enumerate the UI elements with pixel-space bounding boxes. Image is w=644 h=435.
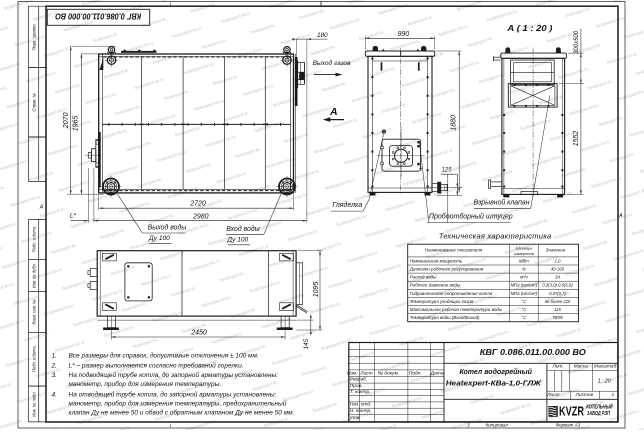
svg-text:KVZR: KVZR [559,405,584,419]
svg-text:Т. контр.: Т. контр. [350,389,371,395]
svg-text:L*: L* [70,213,77,220]
svg-text:Расход воды: Расход воды [410,275,437,280]
svg-text:Подп. и дата: Подп. и дата [31,346,36,372]
svg-text:Номинальная мощность: Номинальная мощность [410,259,463,264]
svg-text:МВт: МВт [519,259,529,264]
svg-text:Котел водогрейный: Котел водогрейный [459,367,532,376]
svg-text:Температура уходящих газов: Температура уходящих газов [410,299,474,304]
svg-text:клапан Ду не менее 50 и обвод: клапан Ду не менее 50 и обвод с обратным… [69,409,295,417]
svg-text:измерения: измерения [514,251,535,256]
svg-text:м³/ч: м³/ч [520,275,528,280]
svg-text:Перв. примен.: Перв. примен. [31,23,36,50]
svg-text:1965: 1965 [73,116,80,132]
svg-text:Подп. и дата: Подп. и дата [31,226,36,252]
svg-text:300х500: 300х500 [574,30,580,54]
svg-text:Выход газов: Выход газов [313,59,352,67]
svg-text:Рабочее давление воды: Рабочее давление воды [410,283,461,288]
svg-text:40-100: 40-100 [551,267,565,272]
svg-text:Утв.: Утв. [350,415,361,421]
svg-text:ЗАВОД РЭП: ЗАВОД РЭП [587,411,610,417]
svg-text:%: % [522,267,526,272]
svg-text:КВГ 0.086.011.00.000 ВО: КВГ 0.086.011.00.000 ВО [480,348,587,357]
svg-text:А: А [39,205,44,211]
svg-text:Подп.: Подп. [409,371,422,377]
svg-text:Лит.: Лит. [551,363,563,369]
svg-text:Наименование показателя: Наименование показателя [425,248,483,253]
svg-text:Копировал: Копировал [486,423,509,428]
svg-text:1552: 1552 [573,131,580,147]
svg-text:А: А [618,213,623,219]
svg-text:манометр, прибор для измерения: манометр, прибор для измерения температу… [69,380,222,388]
svg-text:Пробоотборный штуцер: Пробоотборный штуцер [429,213,513,221]
svg-text:Инв. № подл.: Инв. № подл. [31,391,36,416]
svg-text:1: 1 [169,423,171,428]
svg-text:2.: 2. [51,363,58,370]
svg-text:А ( 1 : 20 ): А ( 1 : 20 ) [506,24,553,33]
svg-text:Значение: Значение [546,248,566,253]
svg-text:2450: 2450 [190,329,207,336]
svg-text:Диапазон рабочего регулировани: Диапазон рабочего регулирования [409,267,484,272]
svg-text:70/95: 70/95 [552,315,563,320]
svg-text:Температура воды (Вход/Выход): Температура воды (Вход/Выход) [410,315,480,320]
svg-text:1095: 1095 [313,282,320,298]
svg-text:2070: 2070 [63,112,70,129]
svg-text:КОТЕЛЬНЫЙ: КОТЕЛЬНЫЙ [586,403,613,411]
svg-text:1 : 20: 1 : 20 [598,378,611,384]
svg-text:Листов: Листов [575,392,594,398]
svg-text:Разраб.: Разраб. [350,376,367,382]
svg-text:А: А [329,106,338,118]
svg-text:1.: 1. [52,352,58,359]
svg-text:990: 990 [397,31,409,38]
svg-text:На подводящей трубе котла, до: На подводящей трубе котла, до запорной а… [69,371,279,379]
svg-text:1: 1 [169,1,171,6]
svg-text:КВГ 0.086.011.00.000 ВО: КВГ 0.086.011.00.000 ВО [55,11,141,21]
svg-text:Формат А3: Формат А3 [555,423,580,428]
svg-text:0,07(0,7): 0,07(0,7) [549,291,566,296]
svg-text:Лист: Лист [359,371,373,377]
svg-text:2980: 2980 [192,214,209,221]
svg-text:Ду 100: Ду 100 [148,235,170,242]
svg-text:МПа (кгс/см²): МПа (кгс/см²) [511,283,538,288]
svg-text:115: 115 [554,307,561,312]
svg-text:Вход воды: Вход воды [226,225,259,233]
svg-text:Выход воды: Выход воды [148,224,187,232]
svg-text:Ду 100: Ду 100 [226,237,248,244]
svg-text:Масштаб: Масштаб [594,363,617,369]
svg-text:не более 220: не более 220 [545,299,571,304]
svg-text:МПа (кгс/см²): МПа (кгс/см²) [511,291,538,296]
svg-text:Дата: Дата [430,371,444,377]
svg-text:манометр, прибор для измерения: манометр, прибор для измерения температу… [69,400,287,408]
svg-text:180: 180 [317,32,328,39]
svg-text:Максимальная рабочая температу: Максимальная рабочая температура воды [410,307,503,312]
svg-text:Гидравлическое сопротивление к: Гидравлическое сопротивление котла [410,291,493,296]
svg-text:1,0: 1,0 [555,259,561,264]
svg-text:34: 34 [555,275,560,280]
svg-text:Взрывной клапан: Взрывной клапан [474,199,530,207]
svg-text:L* – размер выполняется соглас: L* – размер выполняется согласно требова… [69,362,244,370]
svg-text:Все размеры для справок, допус: Все размеры для справок, допустимые откл… [69,351,259,359]
svg-text:Инв. № дубл.: Инв. № дубл. [31,263,36,288]
svg-text:Единицы: Единицы [516,246,533,251]
svg-text:На отводящей трубе котла, до з: На отводящей трубе котла, до запорной ар… [69,391,277,399]
svg-text:№ докум.: № докум. [378,371,400,377]
svg-text:0,3(3,0)-0,6(6,0): 0,3(3,0)-0,6(6,0) [542,283,573,288]
svg-text:1880: 1880 [451,115,458,131]
svg-text:Техническая характеристика: Техническая характеристика [439,232,552,241]
svg-text:Взам. инв. №: Взам. инв. № [31,299,36,325]
svg-text:4.: 4. [52,392,58,399]
svg-text:1: 1 [611,392,614,398]
svg-text:145: 145 [303,338,310,349]
svg-text:Heatexpert-КВа-1,0-ГЛЖ: Heatexpert-КВа-1,0-ГЛЖ [446,379,542,388]
svg-text:Изм.: Изм. [347,371,357,377]
svg-text:Нач. отд.: Нач. отд. [350,402,372,408]
svg-text:2720: 2720 [189,201,206,208]
svg-text:Масса: Масса [574,363,589,369]
svg-text:3.: 3. [52,372,58,379]
svg-text:Лист: Лист [546,392,559,398]
svg-text:Н. контр.: Н. контр. [350,408,372,414]
svg-text:Гляделка: Гляделка [332,201,362,209]
svg-text:125: 125 [442,167,453,173]
svg-text:Справ. №: Справ. № [31,92,36,111]
svg-text:Пров.: Пров. [350,383,363,389]
